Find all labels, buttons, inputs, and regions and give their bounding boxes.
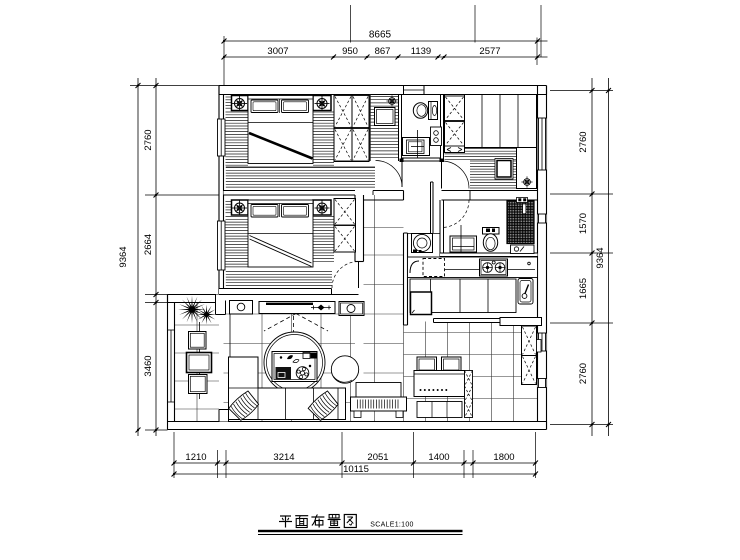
svg-text:2051: 2051 <box>367 452 388 463</box>
svg-text:10115: 10115 <box>343 464 369 475</box>
svg-text:1570: 1570 <box>578 213 589 234</box>
svg-text:9364: 9364 <box>118 246 129 267</box>
svg-text:2664: 2664 <box>143 234 154 255</box>
svg-text:2760: 2760 <box>578 363 589 384</box>
svg-text:2760: 2760 <box>143 129 154 150</box>
svg-text:3007: 3007 <box>267 46 288 57</box>
svg-text:1800: 1800 <box>493 452 514 463</box>
svg-text:8665: 8665 <box>369 30 392 41</box>
svg-text:3460: 3460 <box>143 355 154 376</box>
svg-text:1210: 1210 <box>185 452 206 463</box>
svg-text:9364: 9364 <box>595 247 606 268</box>
svg-text:1665: 1665 <box>578 278 589 299</box>
svg-text:SCALE1:100: SCALE1:100 <box>370 522 413 529</box>
svg-text:2577: 2577 <box>479 46 500 57</box>
svg-text:950: 950 <box>342 46 358 57</box>
svg-text:1139: 1139 <box>411 46 431 57</box>
svg-text:1400: 1400 <box>428 452 449 463</box>
svg-text:3214: 3214 <box>273 452 294 463</box>
svg-text:2760: 2760 <box>578 131 589 152</box>
svg-text:867: 867 <box>375 46 391 57</box>
